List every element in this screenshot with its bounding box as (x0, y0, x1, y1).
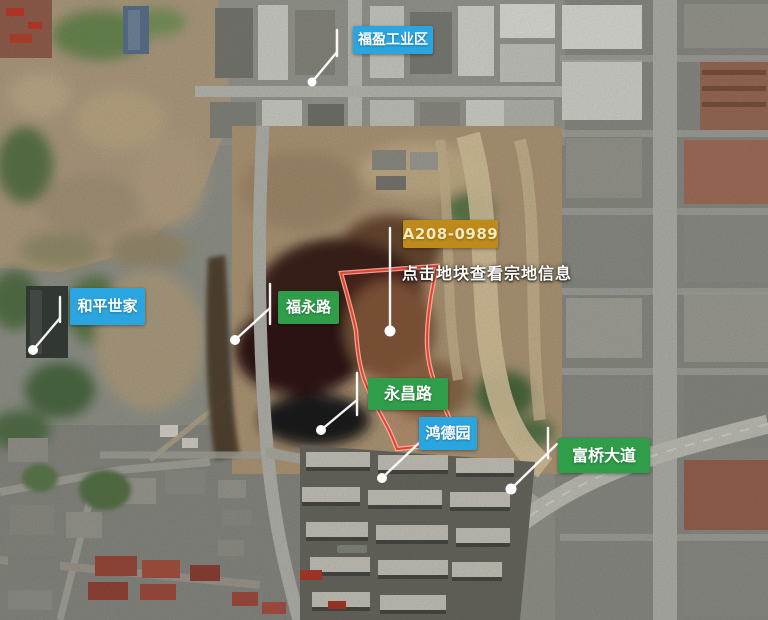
label-text: 永昌路 (384, 386, 432, 402)
map-label-fuyong-road[interactable]: 福永路 (278, 291, 339, 324)
marker-dot (316, 425, 326, 435)
marker-dot (506, 484, 517, 495)
map-label-heping-shijia[interactable]: 和平世家 (70, 288, 145, 325)
label-text: 鸿德园 (425, 426, 470, 441)
marker-dot (28, 345, 38, 355)
marker-dot (385, 326, 396, 337)
label-text: 和平世家 (77, 299, 137, 314)
marker-dot (308, 78, 317, 87)
map-watermark (337, 545, 367, 553)
map-label-fuying-industrial-zone[interactable]: 福盈工业区 (353, 26, 433, 54)
label-text: 福永路 (286, 300, 331, 315)
parcel-hint-text: 点击地块查看宗地信息 (402, 260, 572, 284)
map-label-fuqiao-avenue[interactable]: 富桥大道 (558, 438, 650, 473)
marker-dot (377, 473, 387, 483)
map-label-hongde-garden[interactable]: 鸿德园 (419, 417, 477, 450)
satellite-map-view[interactable]: 福盈工业区 和平世家 福永路 永昌路 鸿德园 富桥大道 A208-0989 点击… (0, 0, 768, 620)
label-text: 富桥大道 (572, 448, 636, 464)
label-text: 福盈工业区 (358, 33, 428, 47)
marker-dot (230, 335, 240, 345)
map-label-yongchang-road[interactable]: 永昌路 (368, 378, 448, 410)
parcel-id-text: A208-0989 (403, 227, 498, 242)
parcel-id-label[interactable]: A208-0989 (403, 220, 498, 248)
